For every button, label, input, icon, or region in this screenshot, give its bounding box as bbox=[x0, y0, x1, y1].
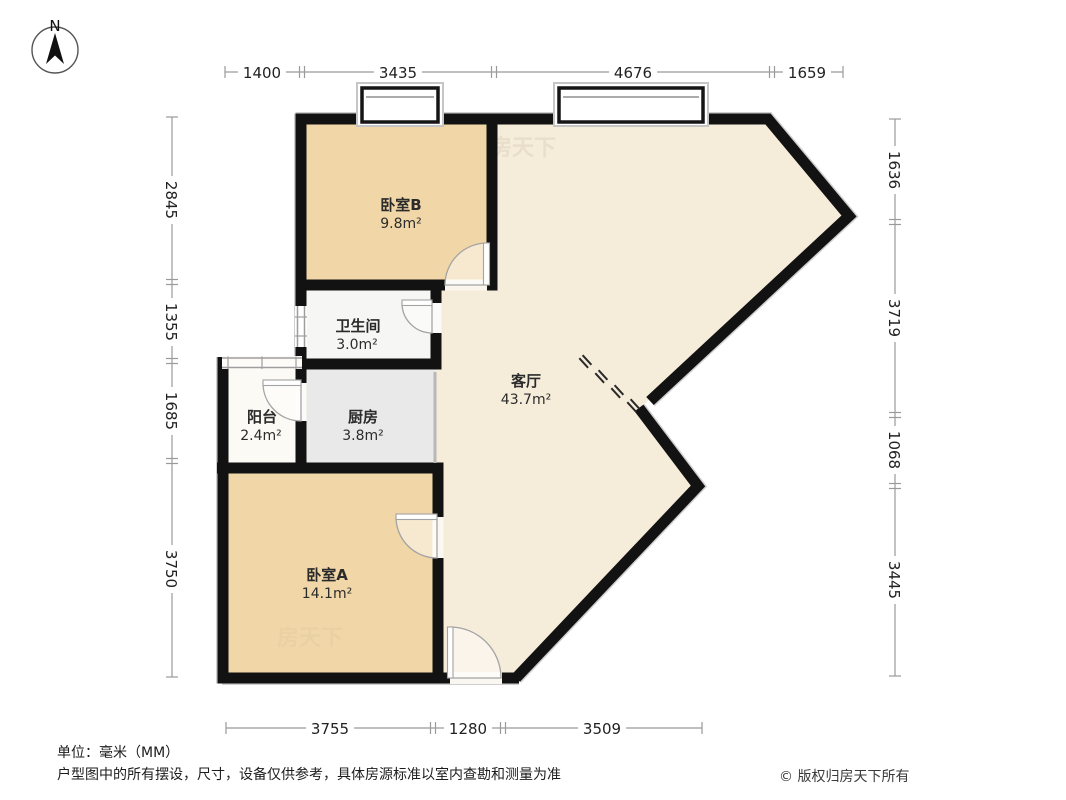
copyright-note: © 版权归房天下所有 bbox=[779, 766, 909, 786]
watermark-text-2: 房天下 bbox=[277, 625, 343, 651]
balcony-area: 2.4m² bbox=[240, 428, 282, 444]
kitchen-area: 3.8m² bbox=[342, 428, 384, 444]
bedroom-a-label: 卧室A bbox=[306, 566, 348, 584]
dim-right-1: 1636 bbox=[885, 151, 903, 189]
dim-left-2: 1355 bbox=[162, 303, 180, 341]
floor-plan-page: N 房天下 房天下 bbox=[0, 0, 1066, 800]
dim-bottom-1: 3755 bbox=[311, 720, 349, 738]
dim-top-3: 4676 bbox=[614, 64, 652, 82]
watermark-text: 房天下 bbox=[490, 135, 556, 161]
floor-plan-svg: N 房天下 房天下 bbox=[0, 0, 1066, 800]
window-balcony bbox=[222, 356, 302, 369]
dim-bottom-2: 1280 bbox=[449, 720, 487, 738]
window-living-room bbox=[554, 83, 708, 126]
bedroom-a-area: 14.1m² bbox=[302, 586, 352, 602]
dim-right-2: 3719 bbox=[885, 299, 903, 337]
living-room-label: 客厅 bbox=[510, 372, 541, 390]
dim-left-3: 1685 bbox=[162, 392, 180, 430]
disclaimer-note: 户型图中的所有摆设，尺寸，设备仅供参考，具体房源标准以室内查勘和测量为准 bbox=[57, 764, 561, 786]
unit-note: 单位：毫米（MM） bbox=[57, 742, 179, 764]
balcony-label: 阳台 bbox=[247, 408, 277, 426]
living-room-floor bbox=[436, 119, 849, 678]
dim-left-1: 2845 bbox=[162, 181, 180, 219]
kitchen-label: 厨房 bbox=[348, 408, 378, 426]
dim-right-4: 3445 bbox=[885, 561, 903, 599]
north-arrow-icon bbox=[46, 33, 64, 64]
bathroom-area: 3.0m² bbox=[336, 337, 378, 353]
dim-right-3: 1068 bbox=[885, 431, 903, 469]
dim-top-4: 1659 bbox=[788, 64, 826, 82]
bedroom-b-label: 卧室B bbox=[380, 196, 421, 214]
dimension-bottom-labels: 3755 1280 3509 bbox=[306, 719, 626, 738]
window-bathroom bbox=[295, 306, 307, 347]
window-bedroom-b bbox=[357, 83, 443, 126]
compass-north-label: N bbox=[49, 17, 60, 35]
dimension-top bbox=[225, 66, 843, 78]
dim-top-2: 3435 bbox=[379, 64, 417, 82]
compass: N bbox=[32, 17, 78, 73]
living-room-area: 43.7m² bbox=[501, 392, 551, 408]
dim-bottom-3: 3509 bbox=[583, 720, 621, 738]
dim-left-4: 3750 bbox=[162, 550, 180, 588]
bathroom-label: 卫生间 bbox=[335, 317, 380, 335]
bedroom-b-area: 9.8m² bbox=[380, 216, 422, 232]
dim-top-1: 1400 bbox=[243, 64, 281, 82]
